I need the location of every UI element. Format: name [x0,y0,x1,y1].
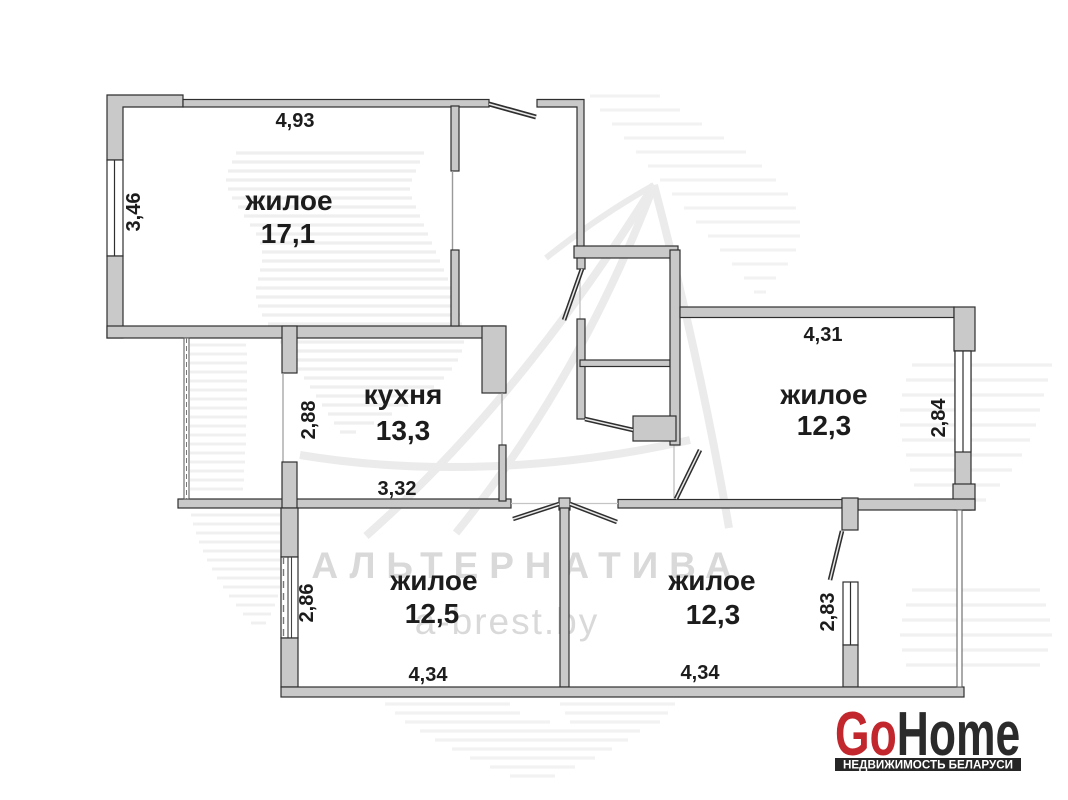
svg-text:3,32: 3,32 [378,478,417,500]
svg-text:жилое: жилое [389,565,477,596]
svg-text:4,34: 4,34 [409,664,449,686]
svg-text:4,34: 4,34 [681,662,721,684]
svg-text:2,88: 2,88 [298,401,320,440]
svg-text:4,93: 4,93 [276,110,315,132]
svg-text:3,46: 3,46 [123,193,145,232]
svg-text:12,5: 12,5 [405,598,460,629]
svg-text:13,3: 13,3 [376,415,431,446]
svg-text:жилое: жилое [667,565,755,596]
svg-text:12,3: 12,3 [797,410,852,441]
svg-text:2,86: 2,86 [296,584,318,623]
svg-text:жилое: жилое [244,185,332,216]
svg-text:12,3: 12,3 [686,599,741,630]
svg-text:2,83: 2,83 [817,593,839,632]
svg-text:17,1: 17,1 [261,218,316,249]
svg-text:НЕДВИЖИМОСТЬ БЕЛАРУСИ: НЕДВИЖИМОСТЬ БЕЛАРУСИ [843,757,1013,771]
svg-text:2,84: 2,84 [928,398,950,438]
svg-text:4,31: 4,31 [804,324,843,346]
svg-text:жилое: жилое [779,379,867,410]
svg-text:кухня: кухня [364,379,443,410]
